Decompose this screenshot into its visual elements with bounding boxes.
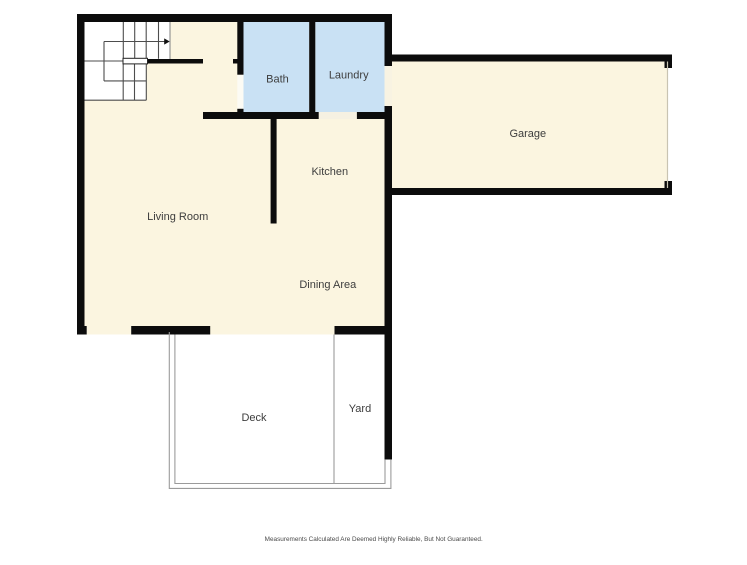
- svg-text:Dining Area: Dining Area: [299, 279, 357, 291]
- svg-text:Laundry: Laundry: [329, 69, 369, 81]
- svg-text:Deck: Deck: [241, 412, 267, 424]
- svg-text:Garage: Garage: [509, 128, 546, 140]
- svg-text:Yard: Yard: [349, 403, 371, 415]
- svg-text:Living Room: Living Room: [147, 211, 208, 223]
- svg-text:Bath: Bath: [266, 74, 289, 86]
- svg-text:Kitchen: Kitchen: [311, 166, 348, 178]
- svg-text:Measurements Calculated Are De: Measurements Calculated Are Deemed Highl…: [265, 536, 483, 543]
